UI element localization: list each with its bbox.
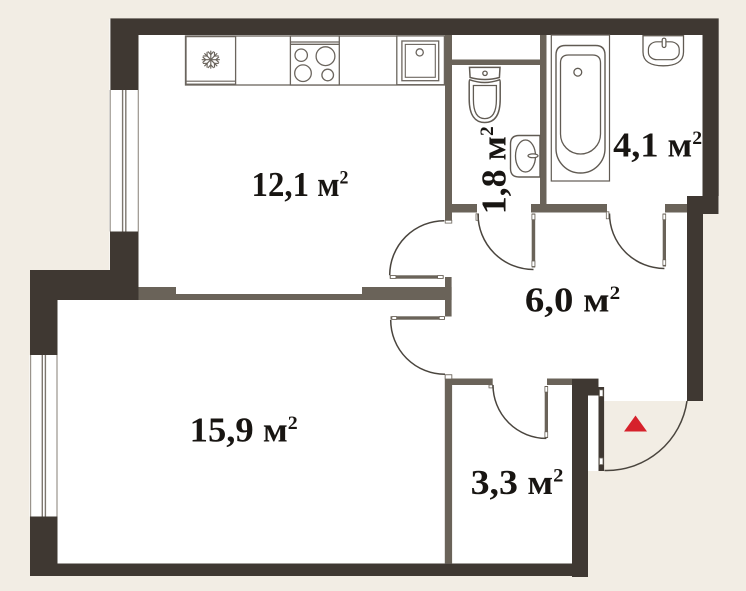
svg-text:1,8 м2: 1,8 м2 <box>474 126 514 214</box>
svg-text:6,0 м2: 6,0 м2 <box>525 280 620 319</box>
svg-text:15,9 м2: 15,9 м2 <box>190 410 298 449</box>
svg-text:3,3 м2: 3,3 м2 <box>471 463 564 501</box>
svg-text:4,1 м2: 4,1 м2 <box>613 125 702 164</box>
svg-text:12,1 м2: 12,1 м2 <box>252 166 349 204</box>
